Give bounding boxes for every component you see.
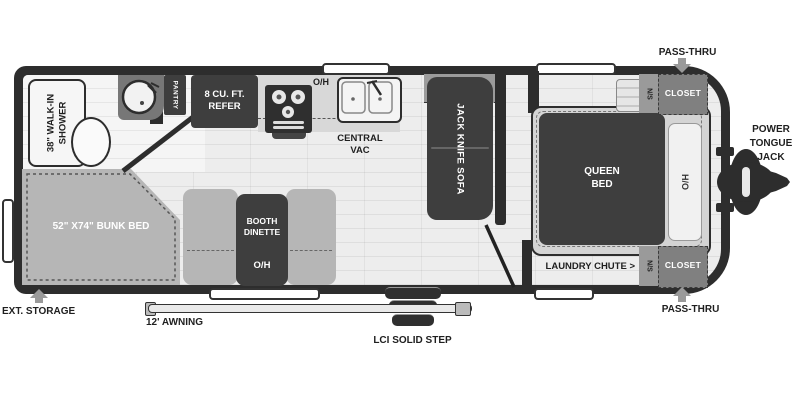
kitchen-overhead-label: O/H [313,77,329,87]
nightstand-bottom-label: N/S [645,260,652,272]
pass-thru-bottom-arrowhead-icon [673,287,691,296]
awning-rail [148,304,472,313]
bed-headboard: H/O [668,123,702,241]
bench-divider [290,250,332,251]
dinette-bench-right [286,189,336,285]
headboard-label: H/O [680,174,690,190]
central-vac-label: CENTRALVAC [324,133,396,157]
bathroom-sink-counter [118,75,164,120]
floorplan-diagram: 38" WALK-INSHOWER PANTRY 8 CU. FT.REFER … [0,0,800,400]
pass-thru-top-arrowhead-icon [673,64,691,73]
laundry-chute-label: LAUNDRY CHUTE > [520,261,635,272]
stove-burners-icon [265,85,312,133]
dinette-window [209,288,320,300]
kitchen-window [322,63,390,75]
stove-base [272,133,306,139]
nightstand-bottom: N/S [639,246,658,286]
queen-bed-label: QUEENBED [539,165,665,191]
pass-thru-top-label: PASS-THRU [640,47,735,58]
jack-knife-sofa: JACK KNIFE SOFA [427,77,493,220]
pass-thru-bottom-arrow-icon [678,296,686,302]
entry-step-3 [392,314,434,326]
bedroom-bottom-window [534,288,594,300]
rear-window [2,199,14,263]
bench-divider [187,250,234,251]
closet-top: CLOSET [658,74,708,115]
dinette-bench-left [183,189,238,285]
pass-thru-bottom-label: PASS-THRU [642,304,739,315]
nightstand-top-label: N/S [645,88,652,100]
ext-storage-label: EXT. STORAGE [2,306,94,317]
dinette-overhead-label: O/H [236,260,288,271]
ext-storage-arrowhead-icon [30,289,48,298]
queen-bed: QUEENBED [539,113,665,245]
dinette-label: BOOTHDINETTE [236,216,288,238]
awning-label: 12' AWNING [146,317,203,328]
toilet [71,117,111,167]
closet-bottom: CLOSET [658,246,708,288]
refrigerator-label: 8 CU. FT.REFER [191,89,258,113]
closet-bottom-label: CLOSET [659,260,707,270]
nightstand-top: N/S [639,74,658,113]
shower-label: 38" WALK-INSHOWER [46,83,69,163]
bunk-label: 52" X74" BUNK BED [22,221,180,232]
bathroom-sink-icon [118,75,164,120]
ext-storage-arrow-icon [35,298,43,303]
double-sink-icon [339,79,395,116]
pantry: PANTRY [164,75,186,115]
bedroom-top-window [536,63,616,75]
awning-end-cap-right [455,302,471,316]
stove [265,85,312,133]
closet-top-label: CLOSET [659,88,707,98]
kitchen-sink [337,77,402,123]
refrigerator: 8 CU. FT.REFER [191,75,258,128]
dinette-table: BOOTHDINETTE O/H [236,194,288,286]
tongue-jack-icon [706,137,798,229]
pantry-label: PANTRY [172,81,179,110]
living-bedroom-wall [495,71,506,225]
entry-step-1 [385,287,441,299]
sofa-label: JACK KNIFE SOFA [455,103,466,195]
step-label: LCI SOLID STEP [355,335,470,346]
